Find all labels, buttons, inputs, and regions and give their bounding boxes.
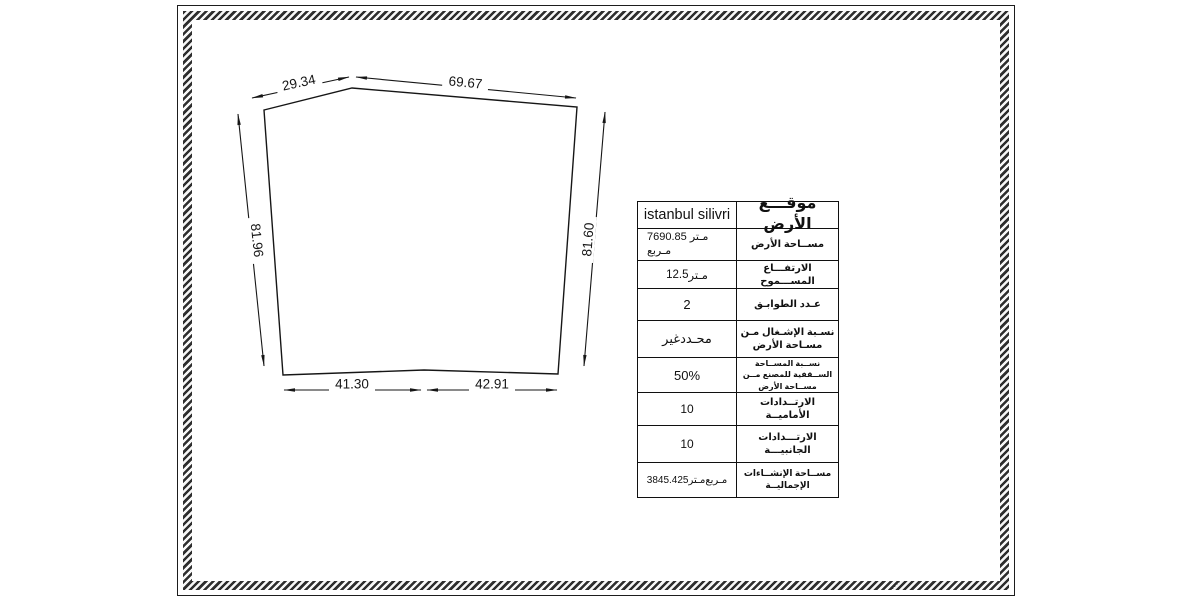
- dimension-label-bottom-left: 41.30: [329, 377, 375, 392]
- table-row-roof-area-ratio: 50% نســبة المســاحة الســقفية للمصنع مـ…: [638, 357, 838, 392]
- svg-text:69.67: 69.67: [448, 73, 483, 91]
- side-setback-label: الارتـــدادات الجانبيـــة: [737, 426, 838, 462]
- svg-text:29.34: 29.34: [281, 72, 318, 94]
- total-construction-area-label: مســاحة الإنشــاءات الإجماليــة: [737, 463, 838, 497]
- dimension-label-left-side: 81.96: [247, 217, 267, 264]
- allowed-height-value: 12.5 مـتر: [638, 261, 737, 288]
- dimension-label-top-left: 29.34: [275, 70, 323, 94]
- allowed-height-label: الارتفـــاع المســـموح: [737, 261, 838, 288]
- site-plan-drawing: 29.34 69.67 41.30 42.91 81.96 81.60: [0, 0, 1200, 600]
- cad-sheet: { "dimensions": { "top_left": "29.34", "…: [0, 0, 1200, 600]
- front-setback-value: 10: [638, 393, 737, 425]
- location-label: موقـــع الأرض: [737, 202, 838, 228]
- roof-area-ratio-value: 50%: [638, 358, 737, 392]
- table-row-total-construction-area: 3845.425 مـتر مـربع مســاحة الإنشــاءات …: [638, 462, 838, 497]
- floors-label: عـدد الطوابـق: [737, 289, 838, 320]
- occupancy-ratio-value: غير محـدد: [638, 321, 737, 357]
- table-row-occupancy-ratio: غير محـدد نسـبة الإشـغال مـن مسـاحة الأر…: [638, 320, 838, 357]
- land-area-label: مســاحة الأرض: [737, 229, 838, 260]
- table-row-land-area: 7690.85 مـتر مـربع مســاحة الأرض: [638, 228, 838, 260]
- total-construction-area-value: 3845.425 مـتر مـربع: [638, 463, 737, 497]
- svg-text:81.96: 81.96: [248, 223, 266, 258]
- floors-value: 2: [638, 289, 737, 320]
- land-info-table: istanbul silivri موقـــع الأرض 7690.85 م…: [637, 201, 839, 498]
- plot-boundary-polygon: [264, 88, 577, 375]
- svg-text:41.30: 41.30: [335, 377, 369, 392]
- svg-text:42.91: 42.91: [475, 377, 509, 392]
- land-area-value: 7690.85 مـتر مـربع: [638, 229, 737, 260]
- table-row-allowed-height: 12.5 مـتر الارتفـــاع المســـموح: [638, 260, 838, 288]
- location-value: istanbul silivri: [638, 202, 737, 228]
- svg-text:81.60: 81.60: [579, 222, 597, 257]
- table-row-side-setback: 10 الارتـــدادات الجانبيـــة: [638, 425, 838, 462]
- table-row-front-setback: 10 الارتــدادات الأماميــة: [638, 392, 838, 425]
- table-row-location: istanbul silivri موقـــع الأرض: [638, 202, 838, 228]
- dimension-label-bottom-right: 42.91: [469, 377, 515, 392]
- table-row-floors: 2 عـدد الطوابـق: [638, 288, 838, 320]
- side-setback-value: 10: [638, 426, 737, 462]
- dimension-label-right-side: 81.60: [579, 216, 598, 263]
- dimension-label-top-right: 69.67: [442, 73, 489, 92]
- roof-area-ratio-label: نســبة المســاحة الســقفية للمصنع مــن م…: [737, 358, 838, 392]
- front-setback-label: الارتــدادات الأماميــة: [737, 393, 838, 425]
- occupancy-ratio-label: نسـبة الإشـغال مـن مسـاحة الأرض: [737, 321, 838, 357]
